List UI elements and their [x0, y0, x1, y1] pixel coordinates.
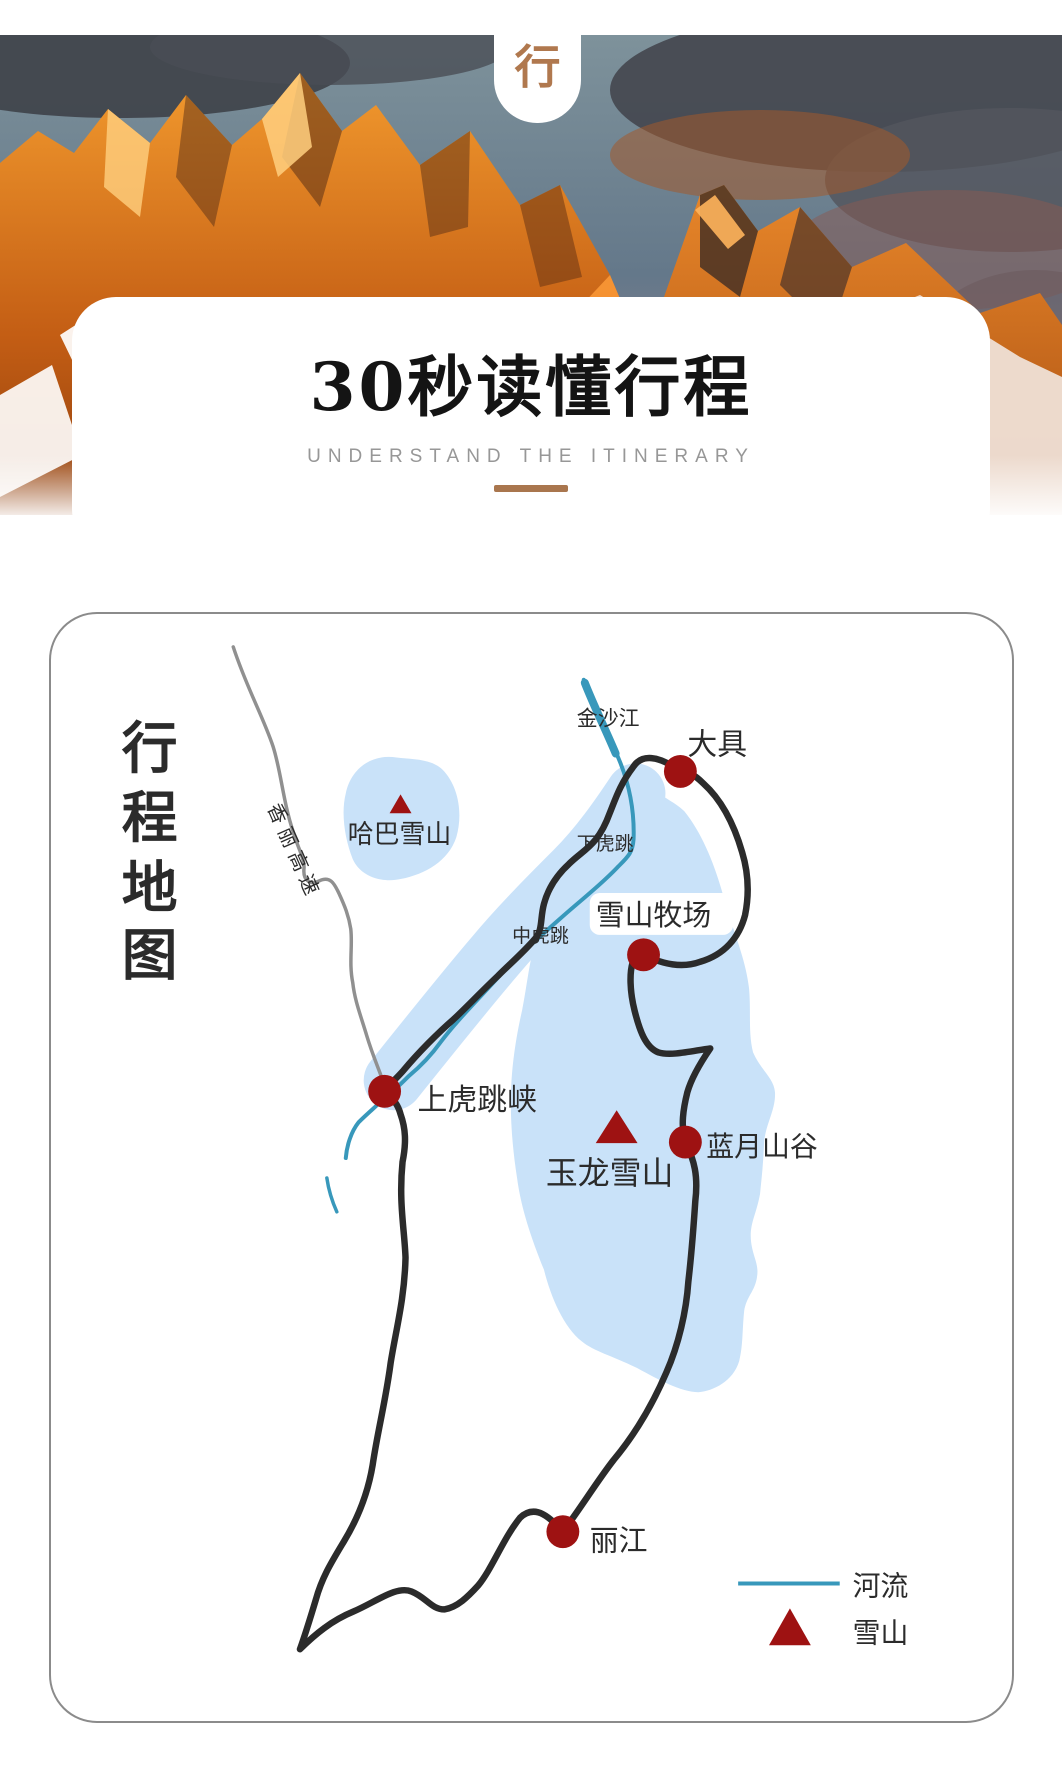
stop-dot-blue-moon: [669, 1126, 702, 1159]
title-card: 30秒读懂行程 UNDERSTAND THE ITINERARY: [72, 297, 990, 553]
vertical-title-char-1: 行: [122, 717, 178, 779]
map-card: 金沙江 大具 哈巴雪山 下虎跳 中虎跳 雪山牧场 上虎跳峡 玉龙雪山 蓝月山谷 …: [49, 612, 1014, 1723]
label-pasture: 雪山牧场: [596, 900, 711, 932]
vertical-title-char-2: 程: [122, 787, 178, 849]
itinerary-map: 金沙江 大具 哈巴雪山 下虎跳 中虎跳 雪山牧场 上虎跳峡 玉龙雪山 蓝月山谷 …: [51, 614, 1012, 1721]
page-title: 30秒读懂行程: [72, 353, 990, 422]
label-upper-tiger: 上虎跳峡: [417, 1084, 536, 1117]
label-yulong: 玉龙雪山: [546, 1155, 673, 1191]
legend-river-label: 河流: [853, 1570, 909, 1601]
accent-bar: [494, 485, 568, 492]
label-daju: 大具: [687, 728, 747, 761]
stop-dot-pasture: [627, 938, 660, 971]
label-jinshajiang: 金沙江: [577, 708, 640, 731]
stop-dot-upper-tiger: [368, 1075, 401, 1108]
vertical-title-char-3: 地: [122, 857, 178, 919]
label-haba: 哈巴雪山: [348, 820, 451, 849]
label-blue-moon: 蓝月山谷: [706, 1131, 817, 1162]
label-lijiang: 丽江: [590, 1526, 648, 1558]
legend-mountain-label: 雪山: [853, 1617, 909, 1648]
badge-label: 行: [515, 44, 561, 90]
legend-mountain-swatch: [769, 1608, 811, 1645]
label-middle-tiger: 中虎跳: [512, 925, 569, 947]
river-tail: [327, 1178, 337, 1212]
page-subtitle: UNDERSTAND THE ITINERARY: [72, 446, 990, 468]
map-vertical-title: 行 程 地 图: [122, 717, 178, 986]
label-lower-tiger: 下虎跳: [577, 833, 634, 855]
stop-dot-lijiang: [546, 1515, 579, 1548]
hero-badge: 行: [494, 0, 581, 123]
label-expressway: 香丽高速: [263, 800, 326, 904]
haba-region: [344, 757, 460, 880]
vertical-title-char-4: 图: [122, 925, 178, 987]
